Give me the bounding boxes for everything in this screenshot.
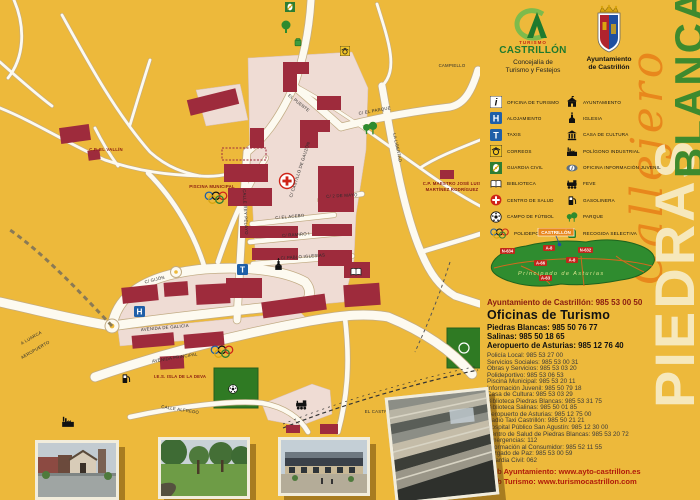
library-icon <box>351 268 361 275</box>
legend-label: AYUNTAMIENTO <box>583 100 621 105</box>
turismo-castrillon-word: CASTRILLÓN <box>494 45 572 56</box>
ayto-label-line1: Ayuntamiento <box>586 56 631 63</box>
turismo-castrillon-logo: TURISMO CASTRILLÓN Concejalía de Turismo… <box>494 8 572 74</box>
web-turismo-line: web Turismo: www.turismocastrillon.com <box>487 477 637 486</box>
legend-item: BIBLIOTECA <box>490 178 559 190</box>
phone-directory: Policía Local: 985 53 27 00 Servicios So… <box>487 353 629 464</box>
legend-label: ALOJAMIENTO <box>507 116 542 121</box>
legend-label: IGLESIA <box>583 116 602 121</box>
ayto-label-line2: de Castrillón <box>588 64 629 71</box>
legend-item: TAXIS <box>490 129 559 141</box>
legend-label: CASA DE CULTURA <box>583 132 629 137</box>
svg-text:CAMPIELLO: CAMPIELLO <box>439 63 466 68</box>
guardia-civil-icon <box>490 162 502 174</box>
legend-label: FEVE <box>583 181 596 186</box>
legend-label: BIBLIOTECA <box>507 181 536 186</box>
svg-text:N-634: N-634 <box>502 249 514 254</box>
post-office-icon <box>340 46 350 56</box>
legend-label: CENTRO DE SALUD <box>507 198 554 203</box>
svg-text:A-8: A-8 <box>546 246 553 251</box>
svg-text:C.P. MAESTRO JOSÉ LUIS: C.P. MAESTRO JOSÉ LUIS <box>423 181 480 186</box>
factory-icon <box>566 145 578 157</box>
svg-text:A-8: A-8 <box>569 258 576 263</box>
legend-label: POLÍGONO INDUSTRIAL <box>583 149 640 154</box>
legend-label: PARQUE <box>583 214 603 219</box>
svg-text:I.E.S. ISLA DE LA DEVA: I.E.S. ISLA DE LA DEVA <box>154 374 206 379</box>
park-icon <box>566 211 578 223</box>
turismo-subtitle-line2: Turismo y Festejos <box>506 67 561 74</box>
legend-label: CORREOS <box>507 149 532 154</box>
library-interior-photo <box>385 387 500 500</box>
legend-label: GUARDIA CIVIL <box>507 165 543 170</box>
post-office-icon <box>490 145 502 157</box>
taxi-icon <box>490 129 502 141</box>
svg-text:PISCINA MUNICIPAL: PISCINA MUNICIPAL <box>189 184 235 189</box>
street-map: i H T i <box>0 0 480 435</box>
legend-label: TAXIS <box>507 132 521 137</box>
park-photo <box>158 437 250 499</box>
legend-item: OFICINA INFORMACIÓN JUVENIL <box>566 162 661 174</box>
legend-item: GASOLINERA <box>566 194 661 206</box>
legend-item: PARQUE <box>566 211 661 223</box>
legend-item: CENTRO DE SALUD <box>490 194 559 206</box>
legend-item: CORREOS <box>490 145 559 157</box>
tourism-office-line: Salinas: 985 50 18 65 <box>487 332 565 341</box>
football-field-icon <box>229 385 238 394</box>
legend-item: ALOJAMIENTO <box>490 112 559 124</box>
legend-item: OFICINA DE TURISMO <box>490 96 559 108</box>
legend-item: CAMPO DE FÚTBOL <box>490 211 559 223</box>
youth-info-icon <box>566 162 578 174</box>
legend-right-column: AYUNTAMIENTO IGLESIA CASA DE CULTURA POL… <box>566 96 661 239</box>
recycling-icon <box>295 39 301 46</box>
legend-item: IGLESIA <box>566 112 661 124</box>
legend-item: FEVE <box>566 178 661 190</box>
ayuntamiento-phone-line: Ayuntamiento de Castrillón: 985 53 00 50 <box>487 298 642 307</box>
legend-item: CASA DE CULTURA <box>566 129 661 141</box>
legend-label: OFICINA INFORMACIÓN JUVENIL <box>583 165 661 170</box>
castrillon-coat-of-arms-icon <box>592 4 626 54</box>
castrillon-location-dot <box>558 243 562 247</box>
health-center-icon <box>490 194 502 206</box>
turismo-subtitle-line1: Concejalía de <box>513 59 553 66</box>
turismo-ca-monogram-icon <box>513 8 553 42</box>
library-icon <box>490 178 502 190</box>
phone-line: Guardia Civil: 062 <box>487 458 629 465</box>
ayuntamiento-coat-of-arms: Ayuntamiento de Castrillón <box>578 4 640 72</box>
tourism-office-icon <box>490 96 502 108</box>
legend-label: OFICINA DE TURISMO <box>507 100 559 105</box>
football-field-icon <box>490 211 502 223</box>
plaza-photo <box>35 440 119 500</box>
fuel-pump-icon <box>566 194 578 206</box>
culture-house-icon <box>566 129 578 141</box>
taxi-icon <box>237 264 248 275</box>
tourism-offices-title: Oficinas de Turismo <box>487 308 610 322</box>
svg-text:A-66: A-66 <box>536 261 546 266</box>
asturias-region-label: Principado de Asturias <box>518 271 605 277</box>
legend-label: GASOLINERA <box>583 198 615 203</box>
church-icon <box>566 112 578 124</box>
asturias-inset-map: N-634 A-8 N-632 A-66 A-8 A-63 Principado… <box>486 228 658 299</box>
svg-text:C.P. EL VALLÍN: C.P. EL VALLÍN <box>89 147 123 152</box>
train-icon <box>566 178 578 190</box>
town-hall-icon <box>566 96 578 108</box>
lodging-icon <box>134 306 145 317</box>
callejero-poster: Callejero PIEDRAS BLANCAS i H T i <box>0 0 700 500</box>
legend-label: CAMPO DE FÚTBOL <box>507 214 554 219</box>
tourism-office-line: Piedras Blancas: 985 50 76 77 <box>487 323 598 332</box>
lodging-icon <box>490 112 502 124</box>
guardia-civil-icon <box>285 2 295 12</box>
legend-item: POLÍGONO INDUSTRIAL <box>566 145 661 157</box>
svg-text:MARTÍNEZ RODRÍGUEZ: MARTÍNEZ RODRÍGUEZ <box>426 187 479 192</box>
legend-item: GUARDIA CIVIL <box>490 162 559 174</box>
legend-left-column: OFICINA DE TURISMO ALOJAMIENTO TAXIS COR… <box>490 96 559 239</box>
tourism-office-line: Aeropuerto de Asturias: 985 12 76 40 <box>487 341 624 350</box>
culture-house-photo <box>278 437 370 496</box>
web-ayuntamiento-line: web Ayuntamiento: www.ayto-castrillon.es <box>487 467 641 476</box>
svg-text:N-632: N-632 <box>580 248 592 253</box>
blancas-vertical-title: BLANCAS <box>666 0 700 178</box>
legend-item: AYUNTAMIENTO <box>566 96 661 108</box>
svg-text:CASTRILLÓN: CASTRILLÓN <box>541 228 571 235</box>
